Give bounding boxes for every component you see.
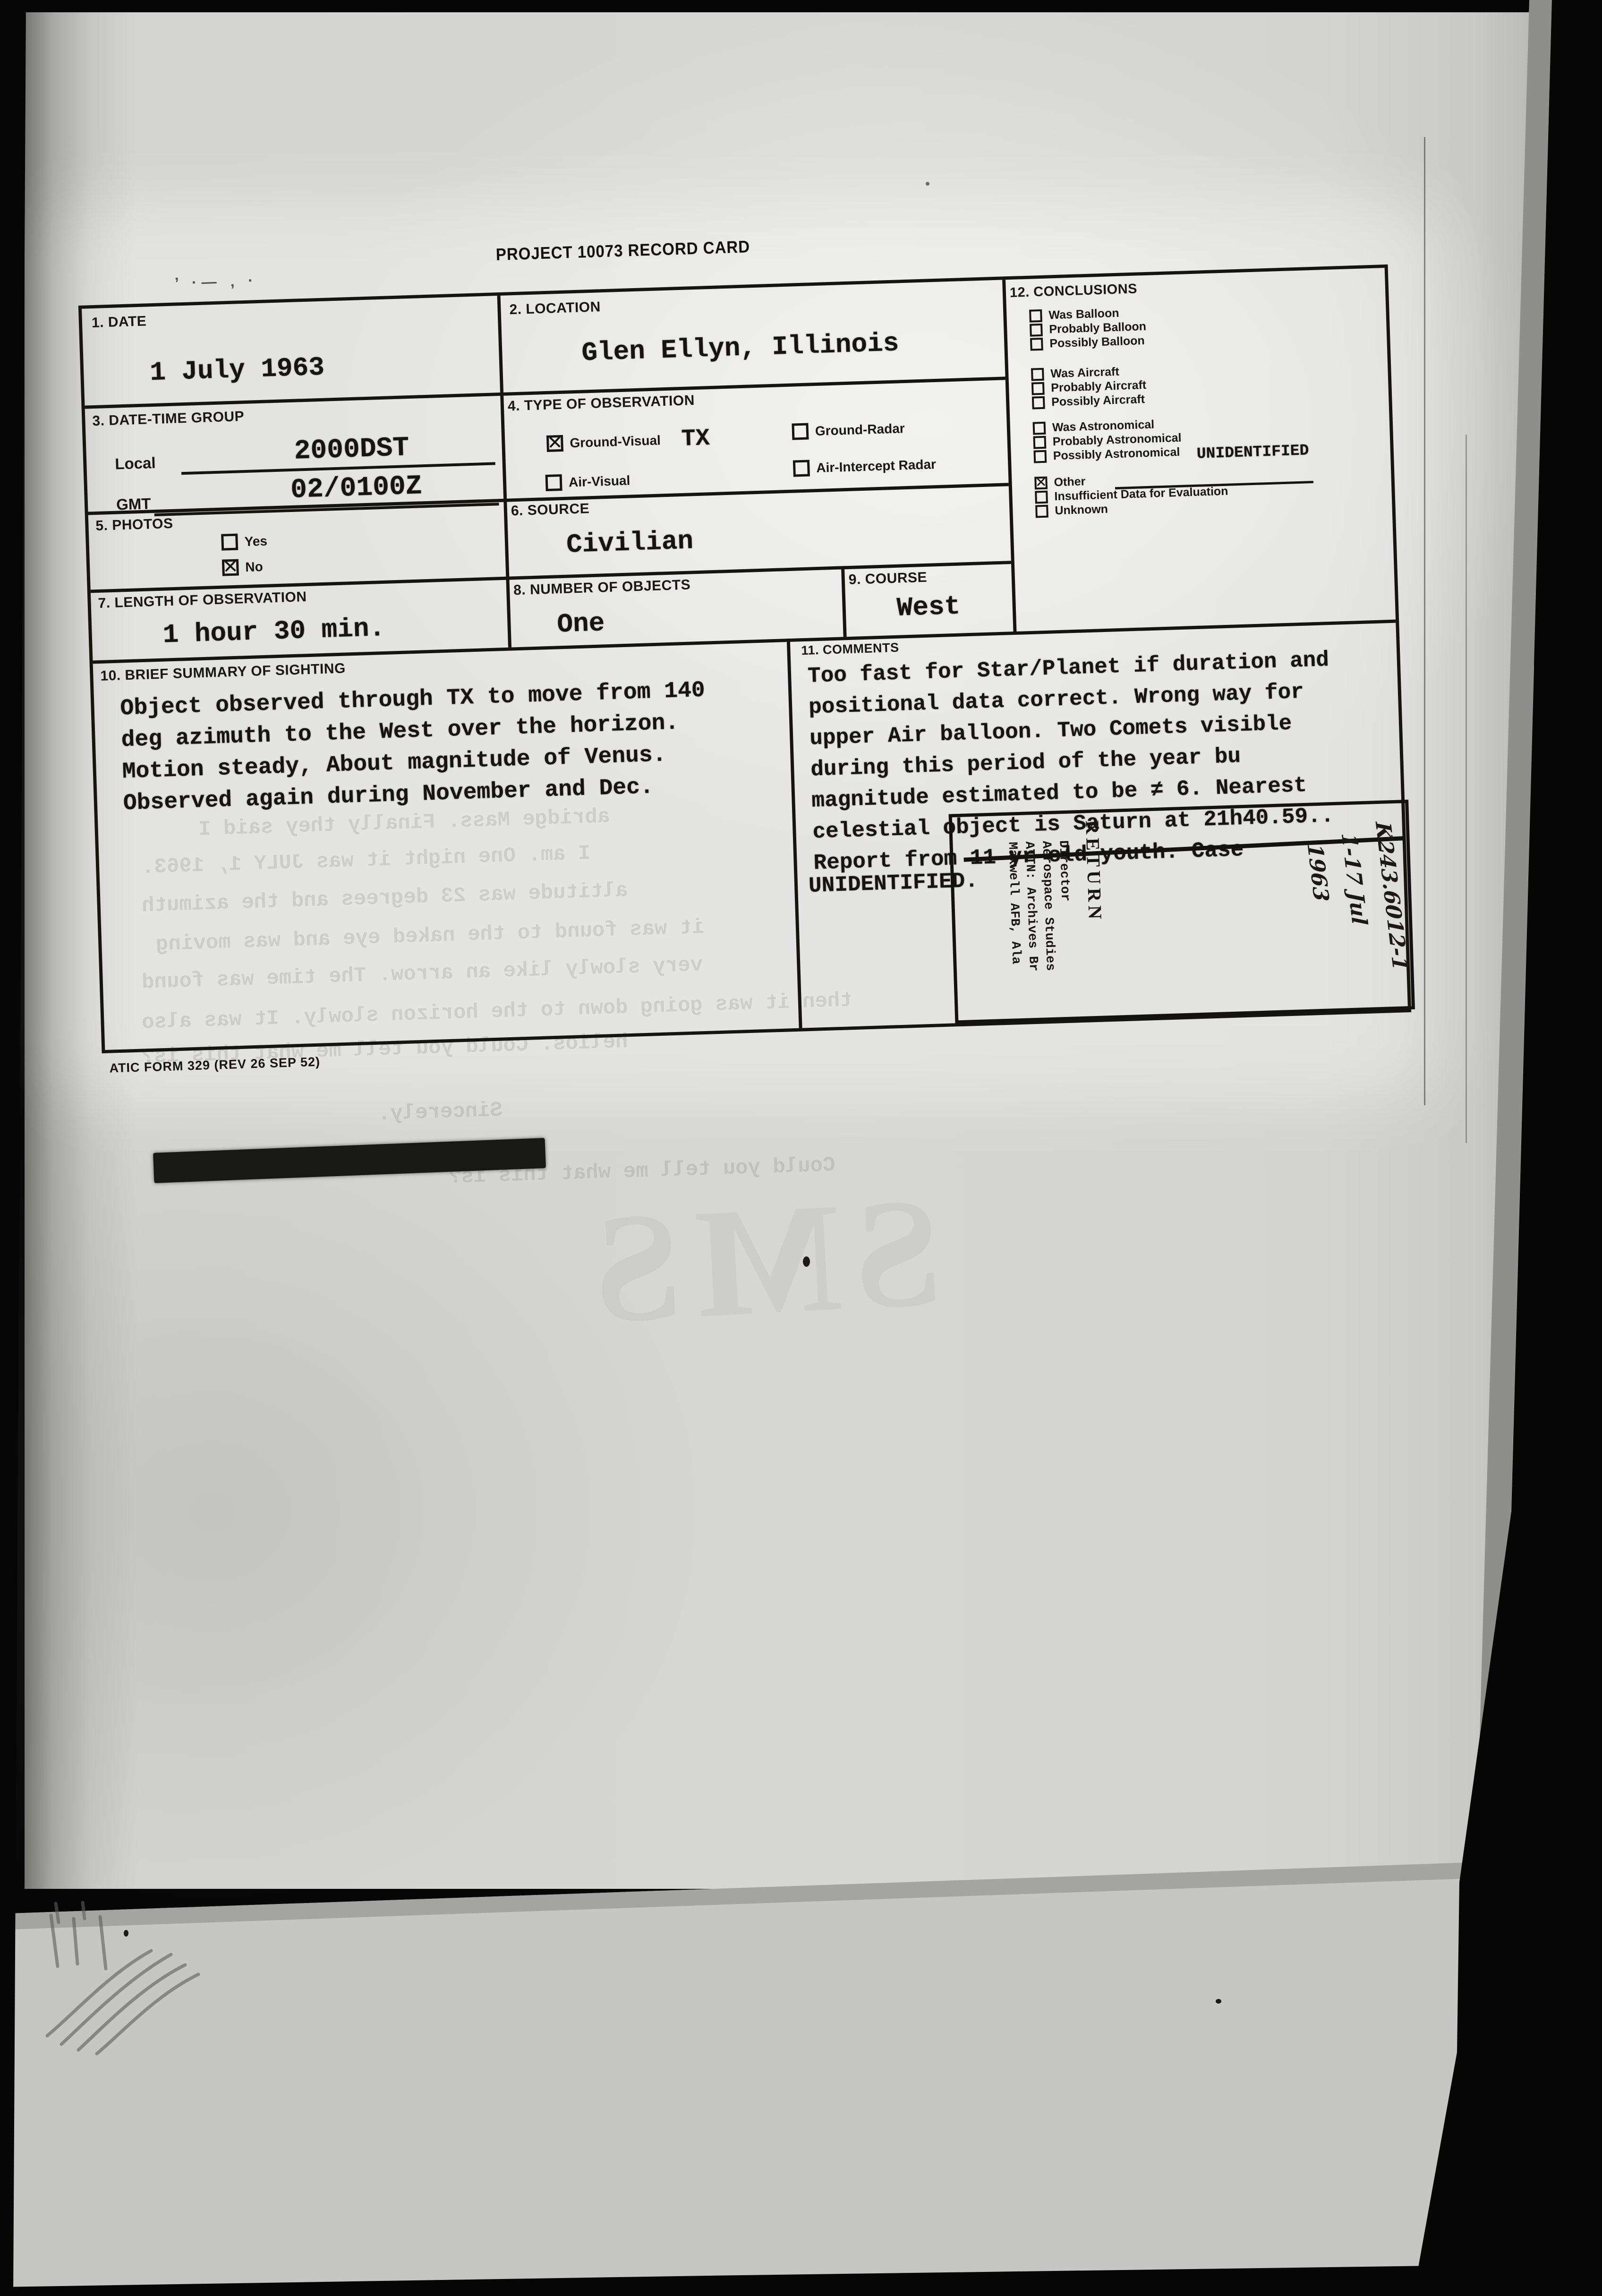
scan-border-frame bbox=[0, 0, 1602, 2296]
scanned-document-page: ’ ·— ‚ · abridge Mass. Finally they said… bbox=[0, 0, 1602, 2296]
